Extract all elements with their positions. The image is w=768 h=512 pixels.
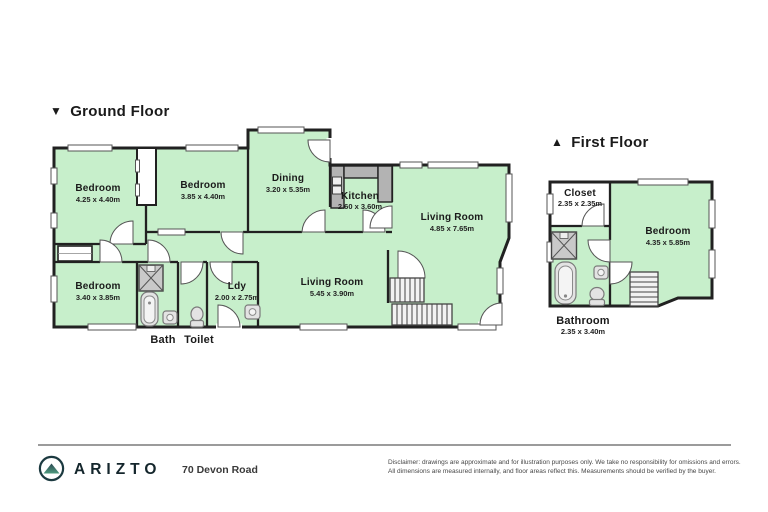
room-label: Ldy (228, 281, 247, 292)
shower-icon (552, 232, 577, 259)
bathtub-icon (555, 262, 576, 304)
shower-icon (139, 265, 163, 291)
room-dims: 2.35 x 3.40m (561, 327, 606, 336)
floor-plan-canvas: Bedroom 4.25 x 4.40m Bedroom 3.85 x 4.40… (0, 0, 768, 512)
room-dims: 5.45 x 3.90m (310, 289, 355, 298)
disclaimer-line-1: Disclaimer: drawings are approximate and… (388, 458, 741, 467)
toilet-icon (191, 307, 204, 327)
room-label: Dining (272, 173, 304, 184)
room-dims: 4.85 x 7.65m (430, 224, 475, 233)
room-label: Closet (564, 188, 596, 199)
disclaimer: Disclaimer: drawings are approximate and… (388, 458, 741, 477)
toilet-icon (590, 288, 605, 306)
room-dims: 3.85 x 4.40m (181, 192, 226, 201)
room-label: Toilet (184, 334, 214, 346)
first-floor-plan: Closet 2.35 x 2.35m Bedroom 4.35 x 5.85m… (547, 179, 715, 336)
room-dims: 4.25 x 4.40m (76, 195, 121, 204)
room-label: Kitchen (341, 191, 379, 202)
room-label: Bedroom (645, 226, 690, 237)
room-dims: 4.35 x 5.85m (646, 238, 691, 247)
property-address: 70 Devon Road (182, 464, 258, 476)
arizto-logo-icon (38, 455, 65, 482)
room-label: Living Room (421, 212, 484, 223)
first-stairs (630, 272, 658, 306)
room-dims: 2.00 x 2.75m (215, 293, 260, 302)
room-dims: 3.40 x 3.85m (76, 293, 121, 302)
footer-divider (38, 444, 731, 446)
room-dims: 3.20 x 5.35m (266, 185, 311, 194)
room-dims: 2.35 x 2.35m (558, 199, 603, 208)
room-label: Bedroom (180, 180, 225, 191)
floorplan-page: { "ground_floor": { "title": "Ground Flo… (0, 0, 768, 512)
brand-name: ARIZTO (74, 461, 161, 479)
room-label: Living Room (301, 277, 364, 288)
room-label: Bathroom (556, 315, 610, 327)
disclaimer-line-2: All dimensions are measured internally, … (388, 467, 741, 476)
ground-floor-plan: Bedroom 4.25 x 4.40m Bedroom 3.85 x 4.40… (51, 127, 512, 346)
sink-icon (163, 311, 177, 324)
room-label: Bedroom (75, 281, 120, 292)
room-label: Bedroom (75, 183, 120, 194)
stove-icon (333, 177, 342, 185)
room-dims: 2.60 x 3.60m (338, 202, 383, 211)
sink-icon (594, 266, 608, 279)
bathtub-icon (141, 292, 158, 326)
laundry-sink-icon (245, 305, 260, 319)
room-label: Bath (150, 334, 175, 346)
